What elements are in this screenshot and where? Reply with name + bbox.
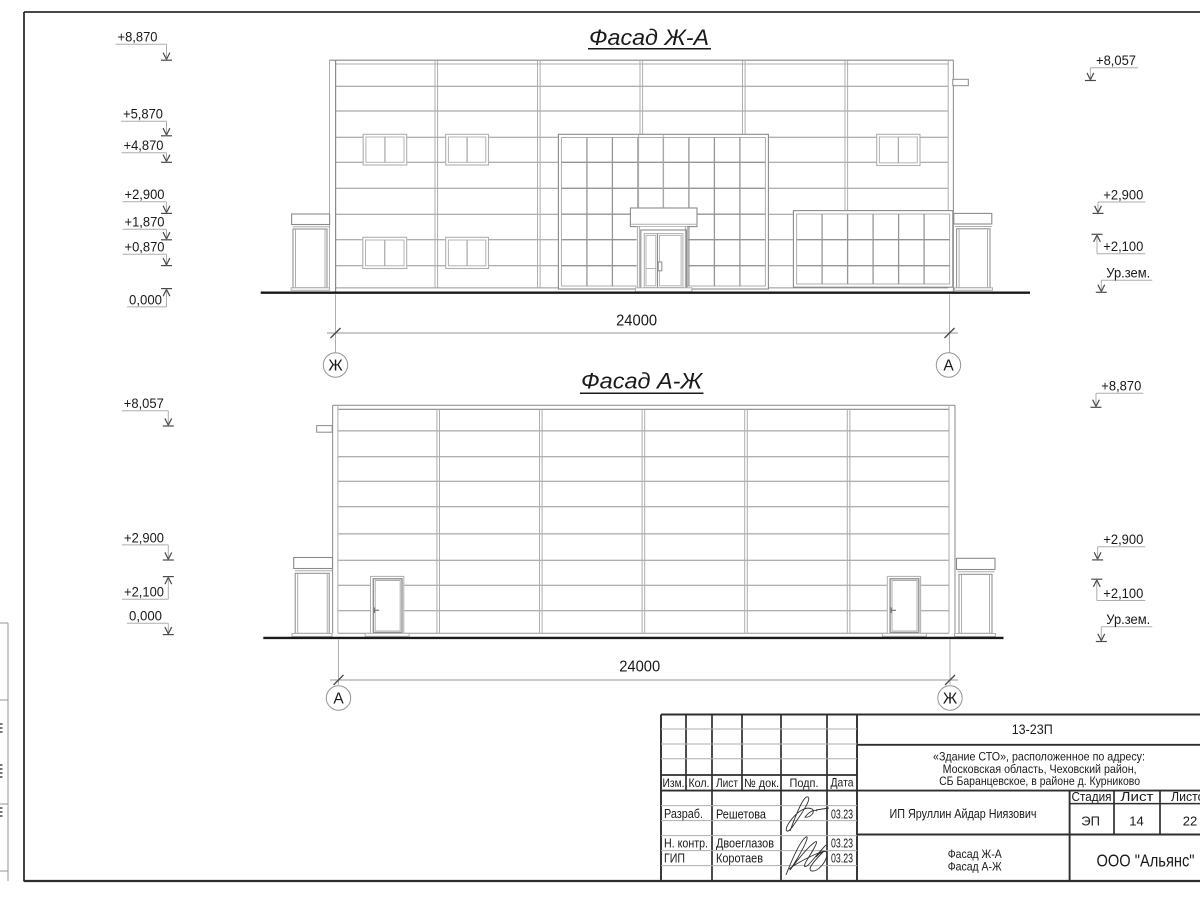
svg-text:13-23П: 13-23П bbox=[1012, 722, 1053, 737]
svg-text:Ур.зем.: Ур.зем. bbox=[1106, 611, 1150, 627]
svg-text:Ж: Ж bbox=[328, 358, 343, 375]
svg-text:+2,900: +2,900 bbox=[1103, 531, 1143, 547]
svg-text:+4,870: +4,870 bbox=[124, 137, 164, 153]
svg-text:03.23: 03.23 bbox=[831, 852, 853, 866]
svg-text:СБ Баранцевское, в районе д. К: СБ Баранцевское, в районе д. Курниково bbox=[939, 774, 1140, 788]
svg-text:Ж: Ж bbox=[943, 691, 958, 708]
svg-text:ГИП: ГИП bbox=[664, 852, 685, 866]
svg-text:ЭП: ЭП bbox=[1081, 813, 1100, 828]
svg-text:14: 14 bbox=[1129, 813, 1143, 828]
svg-text:№ док.: № док. bbox=[744, 776, 779, 790]
svg-text:Изм.: Изм. bbox=[663, 776, 685, 790]
svg-text:А: А bbox=[333, 691, 344, 708]
svg-text:ООО "Альянс": ООО "Альянс" bbox=[1097, 851, 1195, 871]
svg-text:Ур.зем.: Ур.зем. bbox=[1106, 265, 1150, 281]
svg-text:+5,870: +5,870 bbox=[123, 106, 163, 122]
svg-text:+8,870: +8,870 bbox=[1101, 378, 1141, 394]
svg-text:+2,100: +2,100 bbox=[124, 584, 164, 600]
svg-text:+2,100: +2,100 bbox=[1103, 585, 1143, 601]
svg-text:Фасад Ж-А: Фасад Ж-А bbox=[589, 25, 709, 50]
svg-text:Фасад А-Ж: Фасад А-Ж bbox=[581, 369, 704, 394]
svg-text:+2,900: +2,900 bbox=[124, 529, 164, 545]
svg-text:0,000: 0,000 bbox=[129, 608, 162, 624]
svg-text:Кол.: Кол. bbox=[689, 776, 710, 790]
svg-text:24000: 24000 bbox=[616, 312, 657, 329]
svg-text:+8,870: +8,870 bbox=[118, 29, 158, 45]
svg-text:+8,057: +8,057 bbox=[124, 395, 164, 411]
svg-text:Лист: Лист bbox=[716, 776, 738, 790]
svg-text:+8,057: +8,057 bbox=[1096, 52, 1136, 68]
svg-text:22: 22 bbox=[1183, 813, 1197, 828]
svg-text:0,000: 0,000 bbox=[129, 291, 162, 307]
svg-text:+0,870: +0,870 bbox=[125, 239, 165, 255]
svg-text:+1,870: +1,870 bbox=[125, 214, 165, 230]
svg-text:Решетова: Решетова bbox=[716, 808, 766, 822]
svg-text:Стадия: Стадия bbox=[1072, 790, 1112, 804]
svg-text:Двоеглазов: Двоеглазов bbox=[716, 837, 774, 851]
svg-text:Дата: Дата bbox=[831, 776, 854, 790]
svg-text:+2,100: +2,100 bbox=[1103, 238, 1143, 254]
svg-text:Листов: Листов bbox=[1171, 790, 1200, 804]
svg-text:ИП Яруллин Айдар Ниязович: ИП Яруллин Айдар Ниязович bbox=[890, 807, 1037, 821]
svg-text:Разраб.: Разраб. bbox=[664, 807, 703, 821]
svg-text:+2,900: +2,900 bbox=[1103, 186, 1143, 202]
svg-text:Н. контр.: Н. контр. bbox=[664, 837, 708, 851]
svg-text:+2,900: +2,900 bbox=[125, 186, 165, 202]
svg-text:03.23: 03.23 bbox=[831, 808, 853, 822]
svg-text:Коротаев: Коротаев bbox=[716, 852, 763, 866]
svg-text:Лист: Лист bbox=[1121, 790, 1154, 804]
svg-text:24000: 24000 bbox=[619, 659, 660, 676]
svg-text:А: А bbox=[943, 358, 954, 375]
svg-text:Фасад А-Ж: Фасад А-Ж bbox=[948, 860, 1003, 874]
svg-text:03.23: 03.23 bbox=[831, 837, 853, 851]
svg-text:Подп.: Подп. bbox=[790, 776, 819, 790]
